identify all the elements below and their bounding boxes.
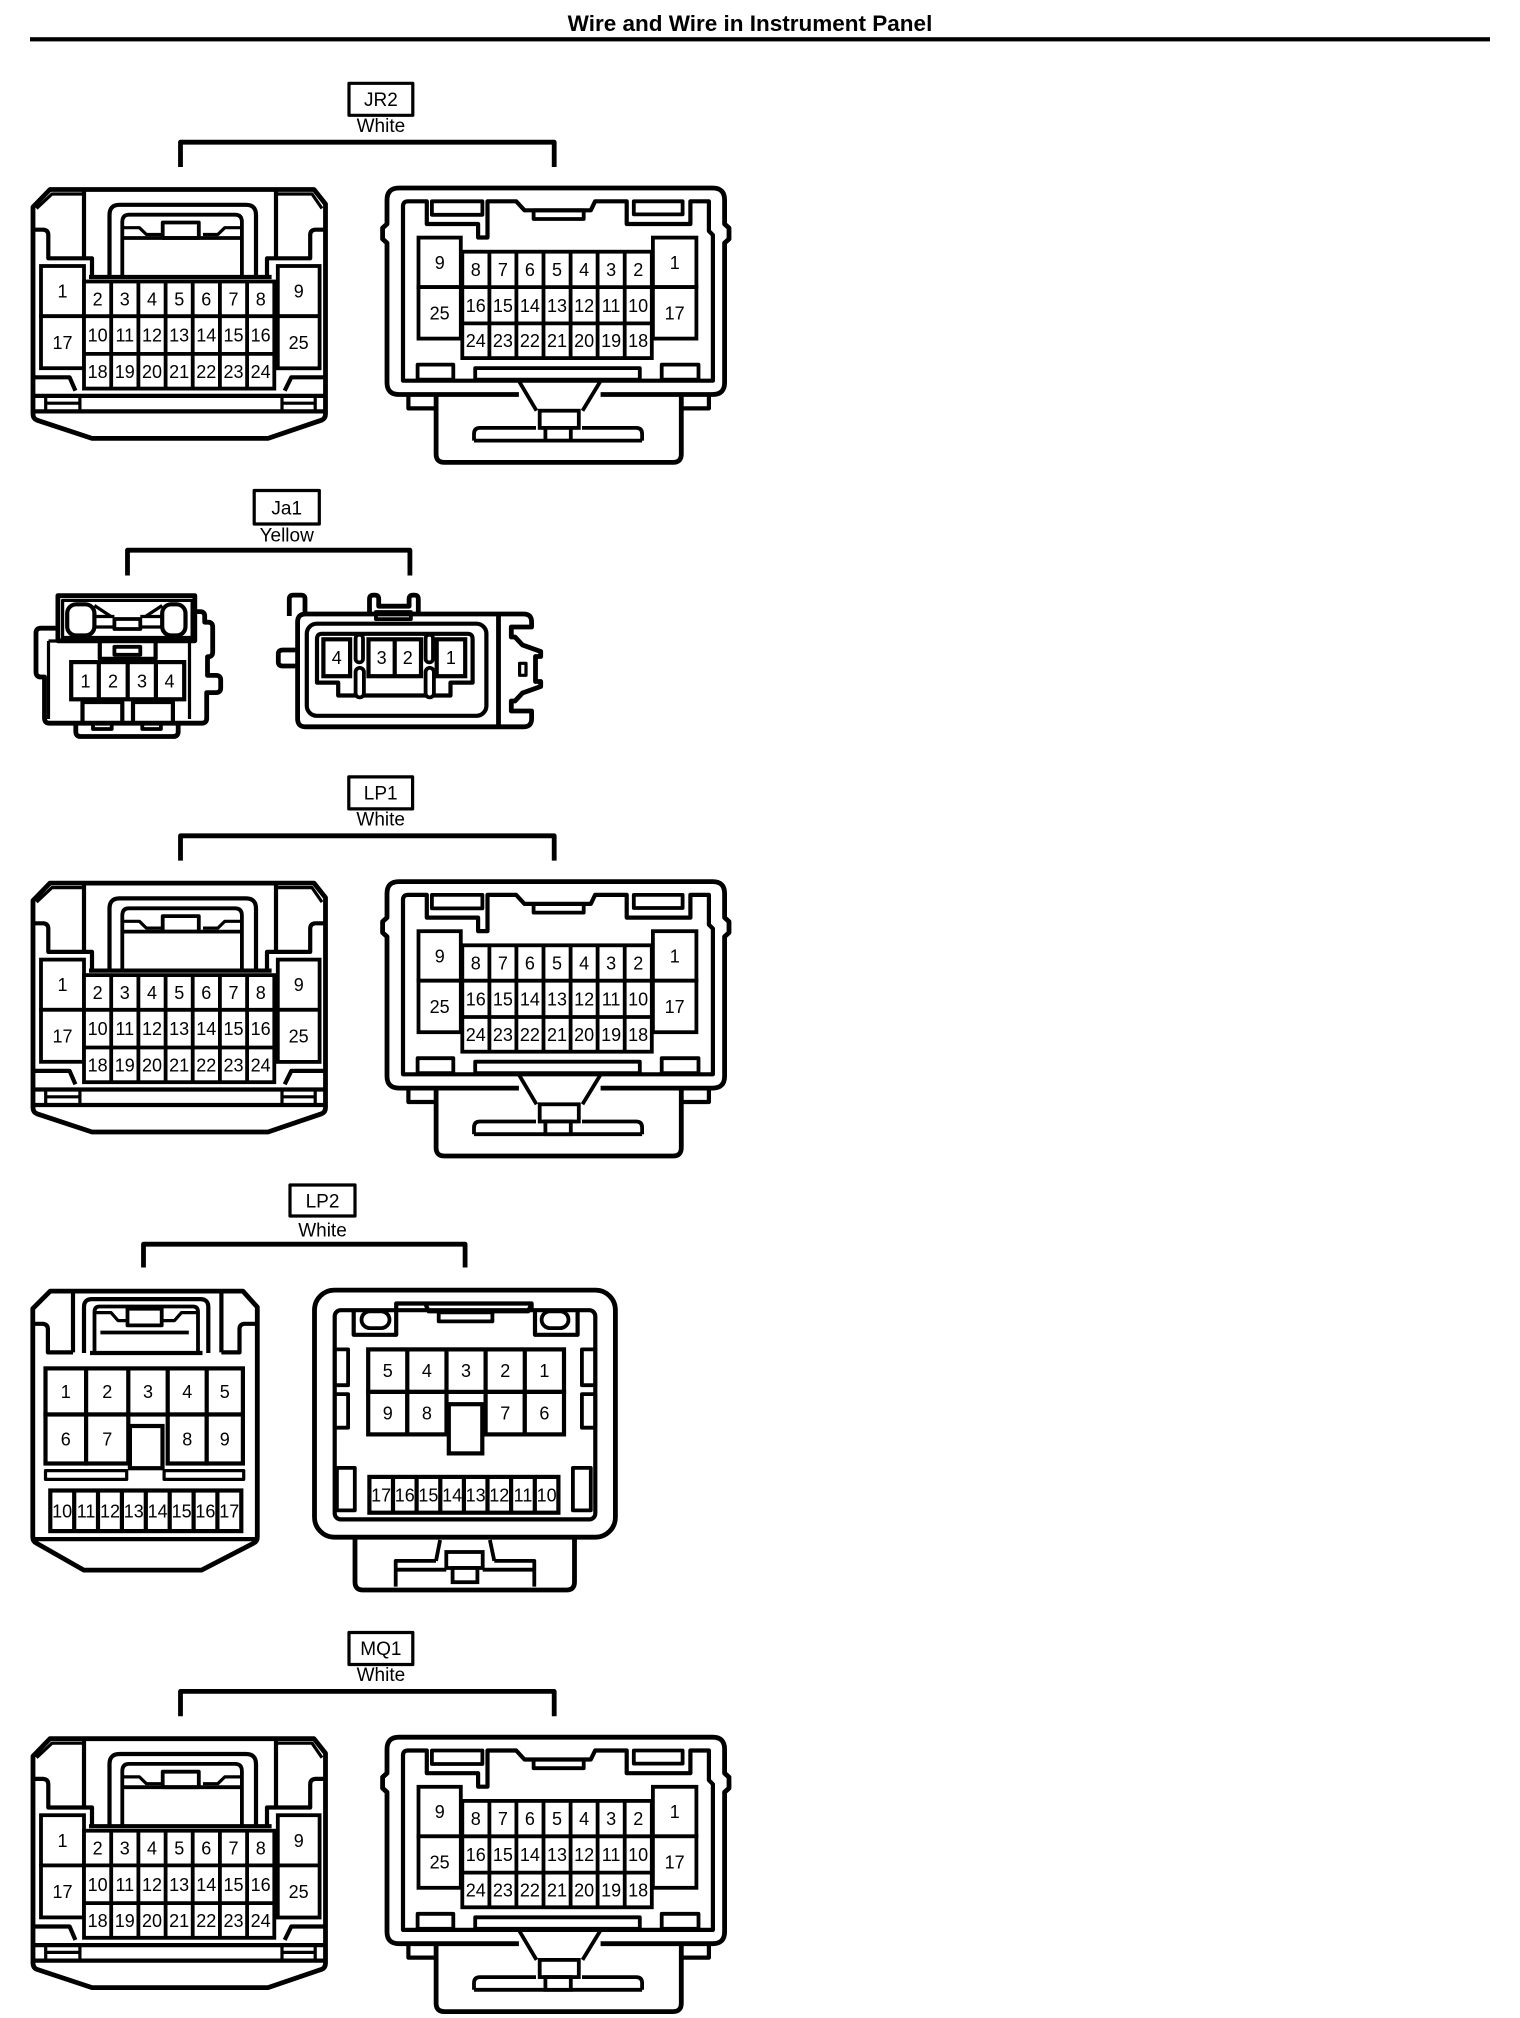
svg-text:14: 14 [442, 1485, 462, 1505]
svg-text:15: 15 [418, 1485, 438, 1505]
svg-text:4: 4 [422, 1361, 432, 1381]
svg-text:10: 10 [537, 1485, 557, 1505]
svg-text:2: 2 [102, 1382, 112, 1402]
svg-text:3: 3 [143, 1382, 153, 1402]
svg-text:5: 5 [383, 1361, 393, 1381]
svg-text:LP1: LP1 [364, 784, 398, 805]
svg-text:1: 1 [80, 672, 90, 692]
svg-text:White: White [356, 810, 405, 831]
svg-text:7: 7 [102, 1430, 112, 1450]
svg-text:3: 3 [137, 672, 147, 692]
svg-text:8: 8 [422, 1404, 432, 1424]
svg-text:3: 3 [377, 648, 387, 668]
svg-text:2: 2 [500, 1361, 510, 1381]
svg-text:White: White [357, 1665, 406, 1686]
svg-text:LP2: LP2 [306, 1192, 340, 1213]
svg-text:Yellow: Yellow [260, 526, 315, 547]
svg-text:17: 17 [371, 1485, 391, 1505]
svg-text:15: 15 [172, 1501, 192, 1521]
svg-text:17: 17 [219, 1501, 239, 1521]
svg-text:6: 6 [539, 1404, 549, 1424]
svg-text:2: 2 [108, 672, 118, 692]
svg-text:1: 1 [539, 1361, 549, 1381]
svg-text:3: 3 [461, 1361, 471, 1381]
svg-text:13: 13 [124, 1501, 144, 1521]
svg-text:Wire and Wire in Instrument Pa: Wire and Wire in Instrument Panel [568, 11, 933, 36]
svg-text:4: 4 [182, 1382, 192, 1402]
svg-text:1: 1 [61, 1382, 71, 1402]
svg-text:10: 10 [52, 1501, 72, 1521]
svg-text:16: 16 [395, 1485, 415, 1505]
svg-text:2: 2 [403, 648, 413, 668]
svg-text:13: 13 [466, 1485, 486, 1505]
svg-text:11: 11 [514, 1485, 533, 1505]
svg-text:9: 9 [220, 1430, 230, 1450]
svg-text:6: 6 [61, 1430, 71, 1450]
svg-text:14: 14 [148, 1501, 168, 1521]
svg-text:11: 11 [77, 1501, 96, 1521]
svg-text:4: 4 [164, 672, 174, 692]
svg-text:Ja1: Ja1 [271, 499, 302, 520]
svg-text:White: White [357, 116, 406, 137]
svg-text:12: 12 [489, 1485, 509, 1505]
svg-text:5: 5 [220, 1382, 230, 1402]
svg-text:JR2: JR2 [364, 90, 398, 111]
svg-text:12: 12 [100, 1501, 120, 1521]
svg-text:8: 8 [182, 1430, 192, 1450]
svg-text:1: 1 [446, 648, 456, 668]
svg-text:7: 7 [500, 1404, 510, 1424]
svg-text:9: 9 [383, 1404, 393, 1424]
svg-text:4: 4 [332, 648, 342, 668]
svg-text:White: White [298, 1221, 347, 1242]
svg-text:MQ1: MQ1 [360, 1639, 401, 1660]
svg-text:16: 16 [195, 1501, 215, 1521]
